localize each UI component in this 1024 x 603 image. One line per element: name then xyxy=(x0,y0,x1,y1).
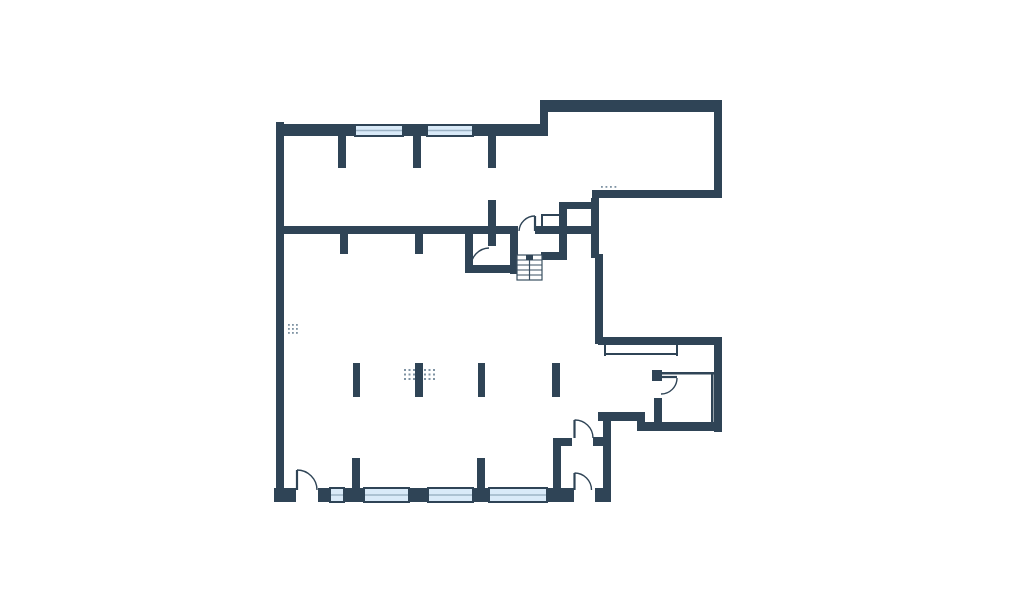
vent-dots-left-wall xyxy=(288,332,290,334)
top-wall-stub-b xyxy=(413,136,421,168)
entry-room-right-line xyxy=(711,373,714,426)
bottom-wall-pier-1 xyxy=(344,488,364,502)
vent-dots-top-right xyxy=(610,186,612,188)
vent-dots-center-1 xyxy=(413,374,415,376)
interior-cross-stub xyxy=(488,200,496,246)
vent-dots-center-2 xyxy=(433,378,435,380)
vent-dots-center-2 xyxy=(429,378,431,380)
door-room-a-arc xyxy=(471,248,489,267)
stairs-landing-mark xyxy=(526,255,533,260)
interior-main-wall xyxy=(284,226,518,234)
bottom-wall-pier-2 xyxy=(409,488,428,502)
closet-left-wall xyxy=(559,202,567,260)
room-a-bottom-wall xyxy=(465,265,518,273)
column-stub-1 xyxy=(353,363,360,397)
shaft-top-line xyxy=(541,214,559,216)
vestibule-top-jamb xyxy=(593,437,603,446)
entry-room-hinge-block xyxy=(652,370,662,381)
bottom-wall-right-end xyxy=(595,488,611,502)
vent-dots-center-2 xyxy=(433,374,435,376)
exterior-top-wall xyxy=(276,124,548,136)
vent-dots-top-right xyxy=(615,186,617,188)
door-entry-room-arc xyxy=(661,378,677,394)
top-wall-stub-a xyxy=(338,136,346,168)
balcony-bottom-line xyxy=(604,353,678,355)
vent-dots-center-2 xyxy=(424,369,426,371)
vent-dots-center-1 xyxy=(409,378,411,380)
right-wall-lower xyxy=(714,337,722,432)
entry-room-left-wall xyxy=(654,398,662,422)
interior-wall-stub-a xyxy=(340,234,348,254)
balcony-top-wall xyxy=(598,337,722,345)
vent-dots-center-2 xyxy=(424,374,426,376)
vent-dots-left-wall xyxy=(296,332,298,334)
top-right-room-bottom-wall xyxy=(592,190,722,198)
vent-dots-center-1 xyxy=(404,369,406,371)
bottom-wall-stub-2 xyxy=(477,458,485,488)
closet-top-wall xyxy=(559,202,599,209)
top-right-room-top-wall xyxy=(540,100,722,112)
vent-dots-left-wall xyxy=(292,328,294,330)
vent-dots-center-1 xyxy=(404,374,406,376)
vent-dots-center-1 xyxy=(404,378,406,380)
bottom-right-wall xyxy=(637,422,722,431)
vent-dots-left-wall xyxy=(288,324,290,326)
vent-dots-left-wall xyxy=(296,328,298,330)
bottom-wall-pier-3 xyxy=(473,488,489,502)
vestibule-top-stub xyxy=(553,438,572,446)
floor-plan-svg xyxy=(0,0,1024,603)
vent-dots-center-2 xyxy=(424,378,426,380)
vent-dots-center-1 xyxy=(413,378,415,380)
door-stair-hall-arc xyxy=(519,216,535,231)
bottom-wall-door-jamb xyxy=(318,488,330,502)
entry-room-top-line xyxy=(652,372,714,375)
mid-right-wall-lower xyxy=(595,254,603,344)
vent-dots-center-2 xyxy=(429,369,431,371)
column-stub-4 xyxy=(552,363,560,397)
column-stub-3 xyxy=(478,363,485,397)
exterior-left-wall xyxy=(276,122,284,502)
vent-dots-top-right xyxy=(601,186,603,188)
door-vestibule-top-arc xyxy=(575,420,594,438)
vent-dots-center-2 xyxy=(433,369,435,371)
vent-dots-left-wall xyxy=(292,324,294,326)
vent-dots-center-1 xyxy=(409,369,411,371)
vent-dots-left-wall xyxy=(292,332,294,334)
door-vestibule-bottom-arc xyxy=(575,473,592,490)
floor-plan-image xyxy=(0,0,1024,603)
door-main-entrance-arc xyxy=(297,470,317,490)
vent-dots-center-2 xyxy=(429,374,431,376)
bottom-wall-stub-1 xyxy=(352,458,360,488)
vent-dots-top-right xyxy=(606,186,608,188)
vent-dots-left-wall xyxy=(288,328,290,330)
vent-dots-left-wall xyxy=(296,324,298,326)
vent-dots-center-1 xyxy=(413,369,415,371)
top-wall-stub-c xyxy=(488,136,496,168)
column-stub-2 xyxy=(415,363,423,397)
right-wall-upper xyxy=(714,100,722,198)
vestibule-left-wall xyxy=(553,438,561,492)
bottom-wall-left-corner xyxy=(274,488,296,502)
interior-wall-stub-b xyxy=(415,234,423,254)
stair-hall-bottom-wall xyxy=(541,252,561,260)
balcony-right-line xyxy=(676,345,678,356)
vent-dots-center-1 xyxy=(409,374,411,376)
